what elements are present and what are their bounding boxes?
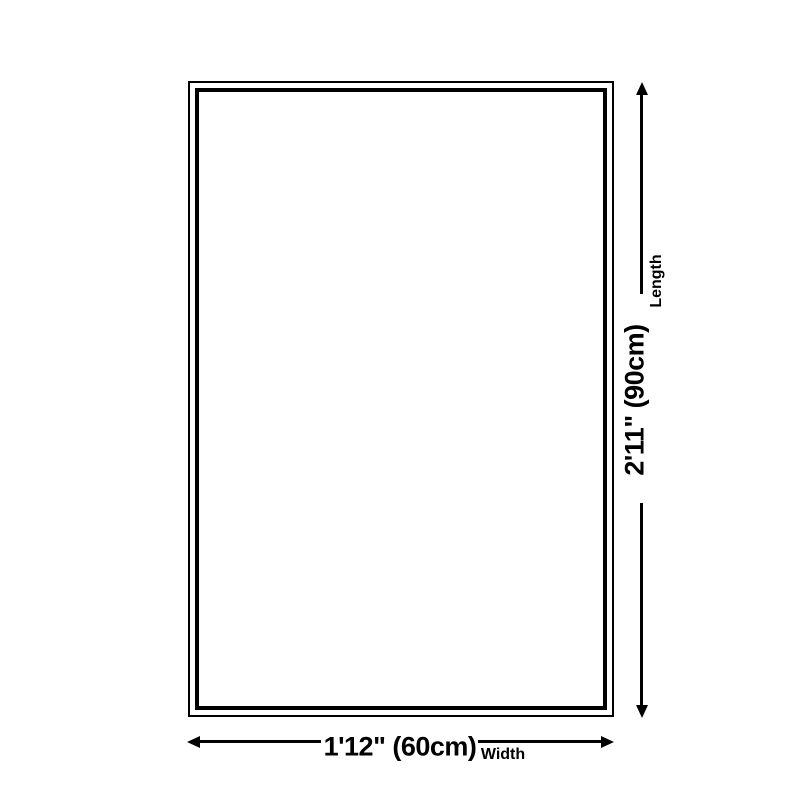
length-arrow-line-upper [640,93,643,294]
width-arrow-line-left [198,740,321,743]
length-axis-label: Length [649,254,665,307]
arrow-right-icon [601,736,614,748]
product-outline-inner [195,88,607,710]
length-arrow-line-lower [640,503,643,706]
dimension-diagram: 2'11" (90cm) Length 1'12" (60cm) Width [0,0,800,800]
length-value-label: 2'11" (90cm) [622,324,649,475]
width-value-label: 1'12" (60cm) [324,734,477,761]
width-axis-label: Width [481,747,525,763]
arrow-down-icon [636,705,648,718]
product-outline-outer [188,81,614,717]
width-arrow-line-right [478,740,602,743]
